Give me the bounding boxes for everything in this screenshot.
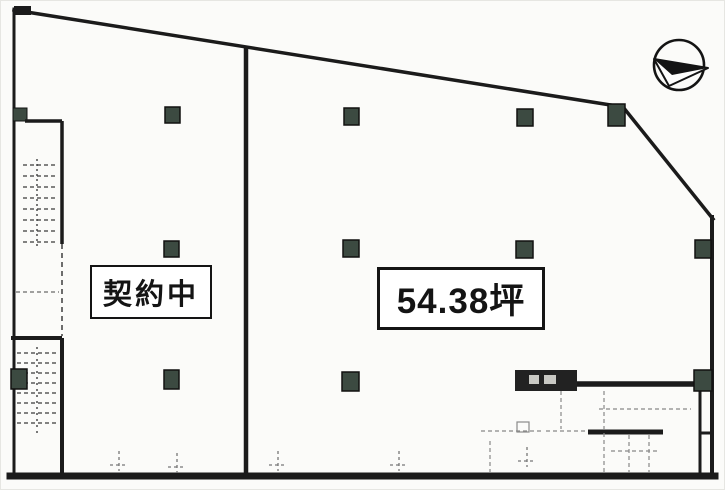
left-unit-label: 契約中	[90, 265, 212, 319]
outer-walls	[10, 6, 715, 477]
structural-column	[344, 108, 359, 125]
door-swing-mark	[269, 451, 287, 471]
structural-column	[165, 107, 180, 123]
stairwell-lower	[11, 338, 62, 475]
structural-column	[695, 240, 711, 258]
floor-plan-drawing	[1, 1, 725, 490]
stairwell-upper	[13, 108, 62, 336]
structural-column	[164, 241, 179, 257]
door-swing-mark	[390, 451, 408, 471]
structural-column	[11, 369, 27, 389]
structural-column	[164, 370, 179, 389]
structural-column	[342, 372, 359, 391]
north-arrow-icon	[654, 40, 708, 90]
structural-column	[608, 104, 625, 126]
service-core	[481, 370, 712, 475]
door-marks-layer	[110, 447, 536, 473]
door-swing-mark	[518, 447, 536, 467]
right-unit-area-label: 54.38坪	[377, 267, 545, 330]
right-unit-area-text: 54.38坪	[397, 273, 526, 324]
door-swing-mark	[168, 453, 186, 473]
structural-column	[516, 241, 533, 258]
columns-layer	[11, 104, 712, 391]
structural-column	[343, 240, 359, 257]
structural-column	[517, 109, 533, 126]
left-unit-label-text: 契約中	[103, 271, 199, 313]
floor-plan: 契約中 54.38坪	[0, 0, 725, 490]
door-swing-mark	[110, 451, 128, 471]
elevator-block	[515, 370, 577, 391]
structural-column	[694, 370, 712, 391]
